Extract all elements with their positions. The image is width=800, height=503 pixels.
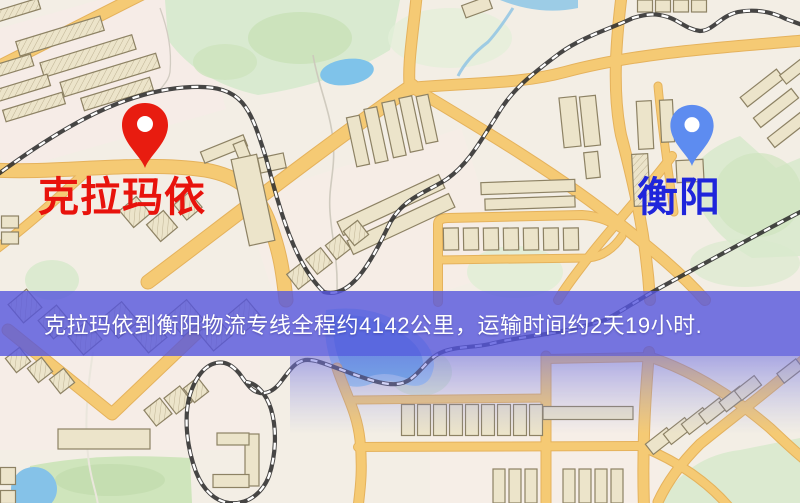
destination-city-label: 衡阳: [637, 177, 721, 218]
origin-city-label: 克拉玛依: [38, 177, 206, 218]
map-view: 克拉玛依 衡阳 克拉玛依到衡阳物流专线全程约4142公里，运输时间约2天19小时…: [0, 0, 800, 503]
route-summary-banner: 克拉玛依到衡阳物流专线全程约4142公里，运输时间约2天19小时.: [0, 291, 800, 356]
route-summary-text: 克拉玛依到衡阳物流专线全程约4142公里，运输时间约2天19小时.: [0, 308, 702, 340]
map-graphic: [0, 0, 800, 503]
banner-fade-overlay: [290, 356, 800, 434]
